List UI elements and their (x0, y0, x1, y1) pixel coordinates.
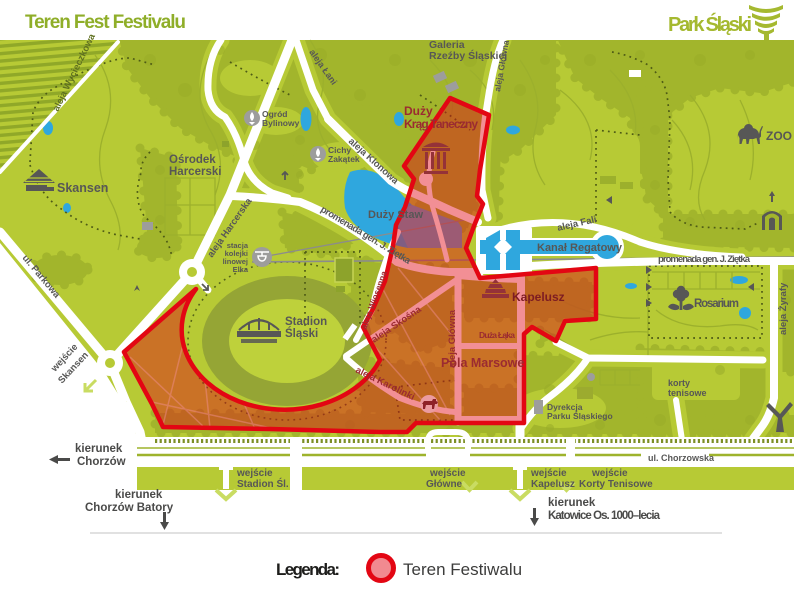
svg-text:Legenda:: Legenda: (276, 560, 340, 579)
svg-text:Rosarium: Rosarium (694, 298, 739, 310)
svg-text:Katowice Os. 1000–lecia: Katowice Os. 1000–lecia (548, 510, 661, 522)
svg-text:Korty Tenisowe: Korty Tenisowe (579, 479, 653, 490)
svg-text:Krąg Taneczny: Krąg Taneczny (404, 117, 478, 131)
svg-text:wejście: wejście (429, 468, 466, 479)
svg-text:wejście: wejście (236, 468, 273, 479)
svg-text:Parku Śląskiego: Parku Śląskiego (547, 410, 613, 421)
svg-text:Rzeźby Śląskiej: Rzeźby Śląskiej (429, 49, 507, 62)
svg-text:ul. Chorzowska: ul. Chorzowska (648, 453, 715, 463)
svg-text:korty: korty (668, 378, 690, 388)
svg-text:Duża Łąka: Duża Łąka (479, 330, 515, 340)
svg-text:Bylinowy: Bylinowy (262, 118, 300, 128)
svg-text:Ośrodek: Ośrodek (169, 154, 216, 166)
svg-text:kierunek: kierunek (115, 489, 163, 501)
svg-text:Elka: Elka (233, 265, 249, 274)
svg-text:Duży Staw: Duży Staw (368, 209, 423, 221)
svg-text:Teren Festiwalu: Teren Festiwalu (403, 560, 522, 579)
svg-text:Kanał Regatowy: Kanał Regatowy (537, 242, 623, 254)
svg-text:Stadion Śl.: Stadion Śl. (237, 477, 289, 490)
svg-text:tenisowe: tenisowe (668, 388, 707, 398)
svg-text:ZOO: ZOO (766, 129, 792, 143)
svg-text:aleja Główna: aleja Główna (447, 309, 458, 368)
svg-text:Teren Fest Festivalu: Teren Fest Festivalu (25, 12, 186, 33)
svg-text:Stadion: Stadion (285, 316, 327, 328)
svg-text:Harcerski: Harcerski (169, 166, 221, 178)
svg-text:promenada gen. J. Ziętka: promenada gen. J. Ziętka (658, 254, 751, 265)
svg-text:wejście: wejście (530, 468, 567, 479)
svg-text:Duży: Duży (404, 104, 433, 118)
svg-text:Park Śląski: Park Śląski (668, 12, 752, 36)
svg-text:kierunek: kierunek (75, 443, 123, 455)
svg-text:Skansen: Skansen (57, 181, 108, 195)
svg-text:Główne: Główne (426, 479, 463, 490)
svg-text:Śląski: Śląski (285, 327, 318, 340)
svg-text:Kapelusz: Kapelusz (531, 479, 575, 490)
svg-text:Chorzów Batory: Chorzów Batory (85, 502, 174, 514)
svg-text:wejście: wejście (591, 468, 628, 479)
svg-text:Chorzów: Chorzów (77, 456, 126, 468)
svg-text:Zakątek: Zakątek (328, 154, 360, 164)
svg-text:aleja Żyrafy: aleja Żyrafy (778, 282, 789, 335)
svg-text:Kapelusz: Kapelusz (512, 290, 565, 304)
svg-text:kierunek: kierunek (548, 497, 596, 509)
